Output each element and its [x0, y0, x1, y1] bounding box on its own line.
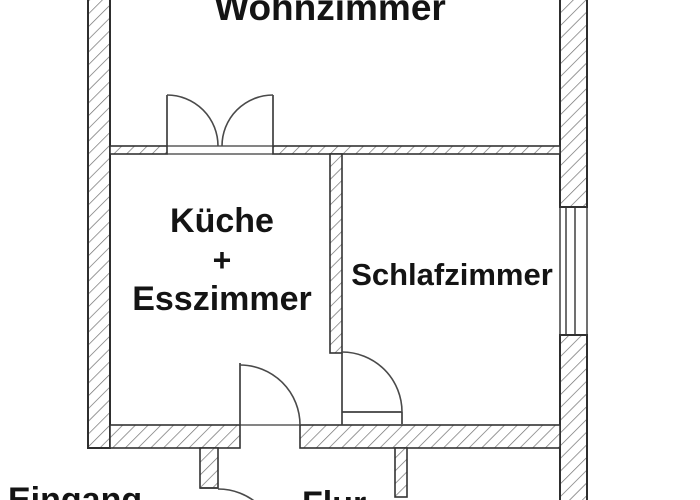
label-flur: Flur — [302, 487, 366, 500]
wall-flur-left — [200, 448, 218, 488]
wall-divider-top-left — [110, 146, 167, 154]
outer-wall-right-upper — [560, 0, 587, 207]
door-schlafzimmer — [342, 352, 402, 425]
label-schlafzimmer: Schlafzimmer — [342, 258, 562, 292]
outer-wall-right-lower — [560, 335, 587, 500]
label-plus-line: + — [110, 241, 334, 280]
wall-divider-top-right — [273, 146, 560, 154]
label-kueche-line: Küche — [110, 202, 334, 241]
label-wohnzimmer: Wohnzimmer — [150, 0, 510, 26]
door-kueche — [240, 363, 300, 425]
floor-plan: Wohnzimmer Küche + Esszimmer Schlafzimme… — [0, 0, 700, 500]
window-right — [560, 207, 587, 335]
label-eingang: Eingang — [8, 483, 142, 500]
double-door-wohnzimmer — [167, 95, 273, 146]
door-eingang — [200, 488, 259, 500]
floor-plan-drawing — [0, 0, 700, 500]
label-kueche-esszimmer: Küche + Esszimmer — [110, 202, 334, 319]
label-esszimmer-line: Esszimmer — [110, 280, 334, 319]
wall-flur-right — [395, 448, 407, 497]
wall-bottom-left — [110, 425, 240, 448]
wall-bottom-right — [300, 425, 560, 448]
outer-wall-left — [88, 0, 110, 448]
